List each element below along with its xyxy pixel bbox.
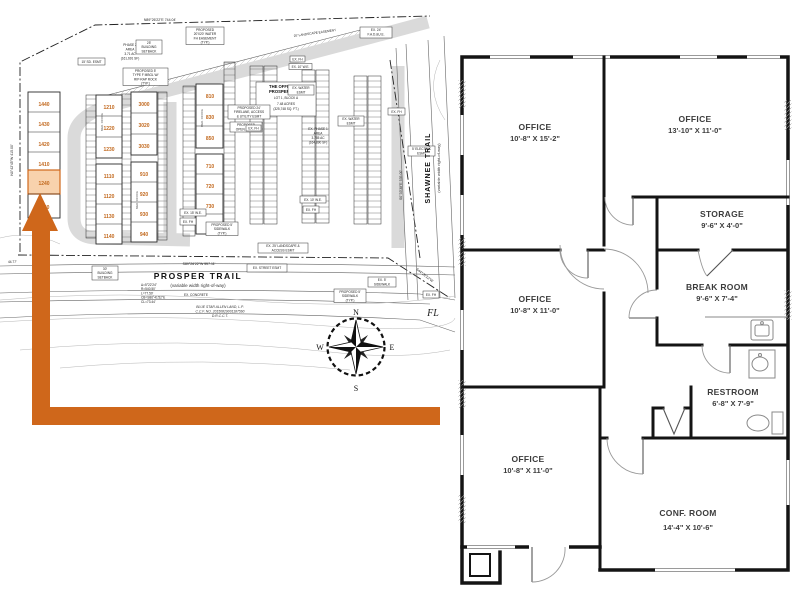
label-ex-10-we: EX. 10' W.E. [292, 65, 310, 69]
label-ex-street: EX. STREET ESMT [253, 266, 281, 270]
unit-number: 710 [206, 164, 215, 170]
label-proposed-sidewalk: (TYP.) [218, 231, 227, 235]
unit-number: 1430 [38, 122, 49, 128]
prosper-trail-label: PROSPER TRAIL [154, 271, 242, 281]
prosper-trail-sub: (variable width right-of-way) [170, 283, 226, 288]
site-plan: 1440 1430 1420 1410 1240 1140 1210 1220 … [0, 0, 460, 605]
phase1-text: 3.785 AC [311, 136, 325, 140]
label-ex-fh: EX. FH [183, 220, 194, 224]
label-landscape25: 25' LANDSCAPE EASEMENT [293, 28, 336, 38]
windows [459, 54, 792, 574]
label-ex-fh: EX. FH [391, 110, 402, 114]
label-water-fh: (TYP.) [201, 41, 210, 45]
compass-rose: N S E W [316, 308, 394, 393]
unit-number: 940 [140, 232, 149, 238]
label-sd-esmt: 15' SD. ESMT [81, 60, 101, 64]
bearing-southeast: S44°26'22"W [415, 267, 434, 283]
bearing-north: N89°26'22"E 744.04' [144, 18, 177, 22]
parking-strip [158, 92, 167, 240]
unit-number: 1410 [38, 162, 49, 168]
room-labels: OFFICE 10'-8" X 15'-2" OFFICE 13'-10" X … [503, 114, 758, 532]
room-dims-office-bl: 10'-8" X 11'-0" [503, 466, 553, 475]
owner-text: BLUE STAR ALLEN LAND, L.P. [196, 305, 244, 309]
room-name-office-ml: OFFICE [519, 294, 552, 304]
phase2-text: (161,691 SF) [121, 57, 140, 61]
room-dims-break-room: 9'-6" X 7'-4" [696, 294, 738, 303]
phase1-text: AREA [314, 132, 324, 136]
owner-text: C.C.F. NO. 20150829001187560 [195, 310, 244, 314]
room-name-office-tl: OFFICE [519, 122, 552, 132]
unit-number: 830 [206, 115, 215, 121]
med-office-label: MED. OFFICE [135, 191, 139, 209]
label-setback25: SETBACK [142, 49, 158, 53]
unit-number: 1130 [104, 214, 115, 220]
highlighted-unit-number: 1240 [38, 181, 49, 187]
label-ex-10-we: EX. 10' W.E. [304, 198, 322, 202]
owner-text: D.R.C.C.T. [212, 314, 229, 318]
room-dims-office-ml: 10'-8" X 11'-0" [510, 306, 560, 315]
label-ex-fh: EX. FH [292, 57, 303, 61]
unit-number: 810 [206, 94, 215, 100]
phase2-text: 3.71 AC [124, 52, 136, 56]
label-ex-fh: EX. FH [306, 208, 317, 212]
unit-number: 1110 [104, 174, 115, 180]
label-ex-water: ESMT [347, 121, 356, 125]
unit-number: 3000 [138, 102, 149, 108]
fixtures [705, 317, 788, 434]
label-firelane: & UTILITY ESMT [237, 114, 262, 118]
phase1-text: (164,890 SF) [309, 141, 328, 145]
toilet [747, 415, 769, 431]
lot-block: LOT 1, BLOCK A [274, 96, 299, 100]
unit-number: 910 [140, 172, 149, 178]
room-name-conf-room: CONF. ROOM [659, 508, 716, 518]
parking-strip [224, 62, 235, 234]
restroom-sink [749, 350, 775, 378]
unit-number: 930 [140, 212, 149, 218]
compass-north: N [353, 308, 359, 317]
compass-south: S [354, 384, 358, 393]
room-name-break-room: BREAK ROOM [686, 282, 748, 292]
dim-4477: 44.77' [8, 260, 17, 264]
parking-strip [86, 95, 96, 238]
unit-number: 730 [206, 204, 215, 210]
shawnee-trail-sub: (variable width right-of-way) [436, 143, 441, 193]
parking-strip [354, 76, 367, 224]
label-ex-sidewalk: SIDEWALK [374, 282, 391, 286]
med-office-label: MED. OFFICE [100, 113, 104, 131]
phase2-text: PHASE 2 [123, 43, 137, 47]
room-dims-office-tl: 10'-8" X 15'-2" [510, 134, 560, 143]
unit-number: 1210 [103, 105, 114, 111]
unit-number: 1230 [103, 147, 114, 153]
room-dims-office-tr: 13'-10" X 11'-0" [668, 126, 722, 135]
parking-strip [368, 76, 381, 224]
label-fl: FL [426, 308, 439, 319]
shawnee-trail-label: SHAWNEE TRAIL [425, 133, 432, 204]
label-ex-landscape-access: ACCESS ESMT [272, 248, 295, 252]
bearing-west: N0°42'45"W 415.00' [10, 144, 14, 176]
bearing-south: S89°26'22"W 557.11' [183, 262, 216, 266]
unit-number: 850 [206, 136, 215, 142]
unit-number: 1120 [104, 194, 115, 200]
label-fadue: F.A.D.&U.E. [367, 32, 384, 36]
med-office-label: MED. OFFICE [200, 109, 204, 127]
unit-number: 3020 [138, 123, 149, 129]
compass-west: W [316, 343, 324, 352]
label-ex-15-we: EX. 15' W.E. [184, 211, 202, 215]
page: 1440 1430 1420 1410 1240 1140 1210 1220 … [0, 0, 809, 605]
vestibule [462, 547, 500, 583]
label-ex-fh: EX. FH [248, 126, 259, 130]
label-ex-water: ESMT [297, 90, 306, 94]
acreage-sf: (325,748 SQ. FT.) [273, 107, 298, 111]
room-name-restroom: RESTROOM [707, 387, 759, 397]
unit-number: 1440 [38, 102, 49, 108]
room-dims-storage: 9'-6" X 4'-0" [701, 221, 743, 230]
compass-east: E [390, 343, 395, 352]
room-name-office-bl: OFFICE [512, 454, 545, 464]
unit-number: 1220 [103, 126, 114, 132]
breakroom-sink [751, 320, 773, 340]
unit-number: 1140 [104, 234, 115, 240]
phase1-text: EX. PHASE 1 [308, 127, 328, 131]
parking-strip [122, 94, 131, 242]
toilet-tank [772, 412, 783, 434]
label-proposed-sidewalk: (TYP.) [346, 298, 355, 302]
unit-number: 920 [140, 192, 149, 198]
unit-number: 3030 [138, 144, 149, 150]
unit-number: 720 [206, 184, 215, 190]
room-name-storage: STORAGE [700, 209, 744, 219]
label-ex-fh: EX. FH [426, 293, 437, 297]
label-rip-rap: (TYP.) [141, 82, 150, 86]
room-dims-conf-room: 14'-4" X 10'-6" [663, 523, 713, 532]
room-name-office-tr: OFFICE [679, 114, 712, 124]
label-ex-concrete: EX. CONCRETE [184, 293, 208, 297]
label-setback30: SETBACK [98, 275, 114, 279]
phase2-text: AREA [126, 48, 136, 52]
room-dims-restroom: 6'-8" X 7'-9" [712, 399, 754, 408]
floor-plan: OFFICE 10'-8" X 15'-2" OFFICE 13'-10" X … [455, 40, 809, 605]
acreage: 7.48 ACRES [277, 102, 295, 106]
unit-number: 1420 [38, 142, 49, 148]
curve-data: CL=73.44' [141, 300, 156, 304]
compass-star-shading [329, 320, 383, 374]
bearing-east: S0°33'38"E 535.00' [399, 170, 403, 200]
wall-hatching [459, 80, 792, 523]
